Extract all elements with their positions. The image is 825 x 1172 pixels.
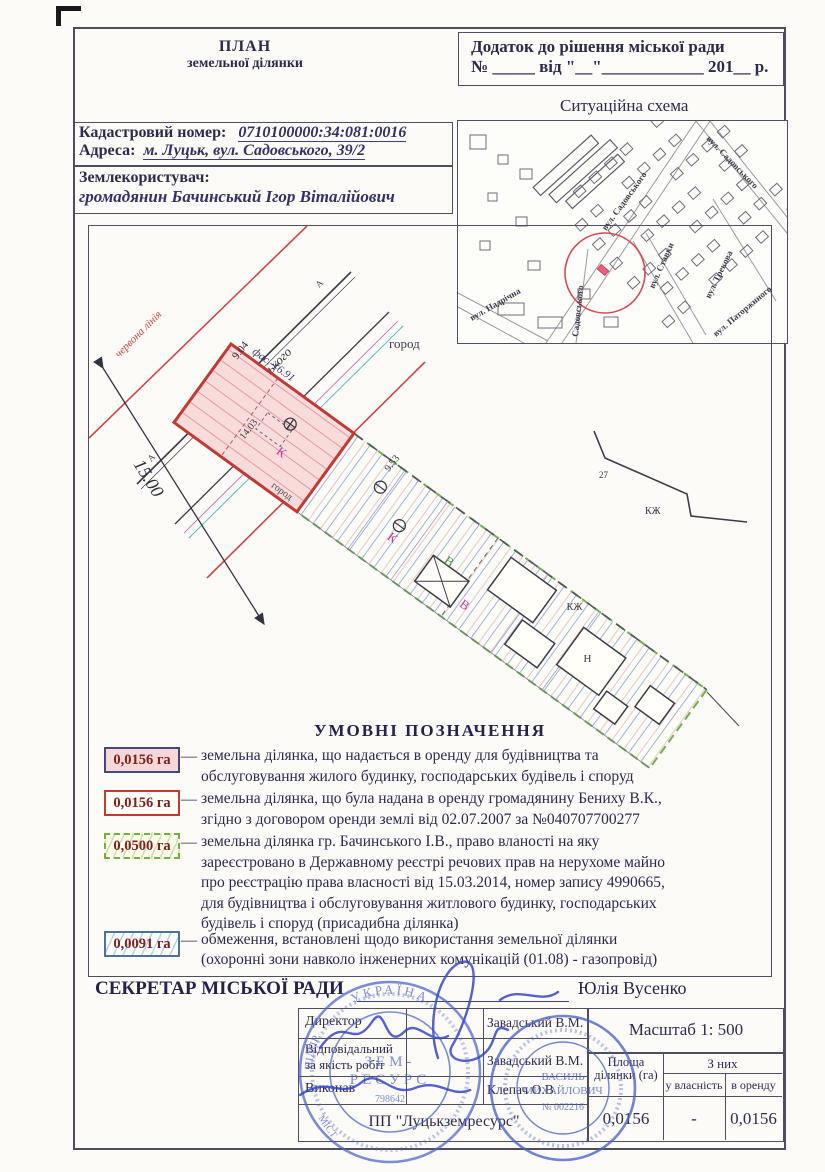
- parcel-band: фас.-16.91 К К В В город Н КЖ: [174, 333, 715, 768]
- legend-text: обмеження, встановлені щодо використання…: [201, 930, 769, 969]
- cadastral-value: 0710100000:34:081:0016: [238, 124, 406, 142]
- annex-line2: № _____ від "__"____________ 201__ р.: [471, 57, 783, 77]
- situational-schema-title: Ситуаційна схема: [560, 96, 786, 116]
- role-director: Директор: [305, 1014, 362, 1030]
- cadastral-address-box: Кадастровий номер: 0710100000:34:081:001…: [73, 122, 453, 166]
- legend-swatch-restriction: 0,0091 га: [104, 931, 180, 957]
- plan-drawing-box: червона лінія червона лінія вул. Садовсь…: [88, 225, 772, 977]
- lease-header: в оренду: [725, 1078, 782, 1093]
- of-them-header: З них: [663, 1056, 782, 1072]
- building-kzh-label-1: КЖ: [567, 602, 583, 613]
- marker-letter-a2: А: [313, 277, 325, 289]
- legend-text: земельна ділянка гр. Бачинського І.В., п…: [201, 832, 769, 935]
- company-name: ПП "Луцькземресурс": [299, 1113, 589, 1131]
- name-director: Завадський В.М.: [487, 1015, 583, 1031]
- landuser-box: Землекористувач: громадянин Бачинський І…: [73, 166, 453, 214]
- legend-dash: —: [181, 748, 197, 766]
- annex-line1: Додаток до рішення міської ради: [471, 37, 783, 57]
- point-number-label: 27: [599, 470, 609, 480]
- building-n-label: Н: [583, 653, 591, 665]
- scale-label: Масштаб 1: 500: [589, 1009, 783, 1051]
- ownership-header: у власність: [663, 1078, 725, 1093]
- scan-crop-mark: [56, 6, 81, 26]
- secretary-name: Юлія Вусенко: [578, 978, 686, 999]
- cadastral-label: Кадастровий номер:: [79, 124, 226, 141]
- role-quality: Відповідальний за якість робіт: [305, 1041, 393, 1072]
- legend-swatch-lease-old: 0,0156 га: [104, 790, 180, 816]
- legend-title: УМОВНІ ПОЗНАЧЕННЯ: [89, 721, 771, 741]
- address-value: м. Луцьк, вул. Садовського, 39/2: [143, 142, 365, 160]
- secretary-label: СЕКРЕТАР МІСЬКОЇ РАДИ: [95, 978, 344, 1000]
- name-executor: Клепач О.В: [487, 1082, 554, 1098]
- address-label: Адреса:: [79, 142, 135, 159]
- landuser-value: громадянин Бачинський Ігор Віталійович: [79, 187, 452, 207]
- legend-dash: —: [181, 834, 197, 852]
- name-quality: Завадський В.М.: [487, 1053, 583, 1069]
- landuser-label: Землекористувач:: [79, 169, 452, 187]
- role-executor: Виконав: [305, 1081, 355, 1097]
- lease-value: 0,0156: [725, 1109, 782, 1129]
- map-long-buildings: [533, 128, 627, 219]
- neighbour-boundary-line: [594, 431, 747, 522]
- legend-swatch-ownership: 0,0500 га: [104, 833, 180, 859]
- signatures-table: Директор Завадський В.М. Відповідальний …: [298, 1008, 588, 1142]
- plan-title-line1: ПЛАН: [130, 38, 360, 56]
- legend: УМОВНІ ПОЗНАЧЕННЯ 0,0156 га — земельна д…: [89, 721, 771, 976]
- legend-dash: —: [181, 932, 197, 950]
- garden-label-main: город: [389, 336, 420, 351]
- legend-swatch-lease-new: 0,0156 га: [104, 747, 180, 773]
- secretary-signature-line: [357, 1001, 569, 1002]
- map-street-sadovskogo-upper: вул. Садовського: [705, 133, 761, 191]
- area-value: 0,0156: [589, 1109, 663, 1129]
- plan-title-line2: земельної ділянки: [130, 56, 360, 72]
- legend-text: земельна ділянка, що надається в оренду …: [201, 746, 769, 787]
- scanned-land-plan-document: ПЛАН земельної ділянки Додаток до рішенн…: [0, 0, 825, 1172]
- legend-text: земельна ділянка, що була надана в оренд…: [201, 789, 769, 830]
- scale-cell: Масштаб 1: 500: [588, 1008, 784, 1053]
- building-kzh-label-2: КЖ: [645, 506, 661, 517]
- area-table: Площа ділянки (га) З них у власність в о…: [588, 1053, 784, 1142]
- plan-title: ПЛАН земельної ділянки: [130, 38, 360, 72]
- annex-box: Додаток до рішення міської ради № _____ …: [458, 32, 784, 86]
- area-col-header: Площа ділянки (га): [591, 1056, 661, 1082]
- ownership-value: -: [663, 1109, 725, 1129]
- red-line-label-1: червона лінія: [113, 309, 165, 361]
- legend-dash: —: [181, 791, 197, 809]
